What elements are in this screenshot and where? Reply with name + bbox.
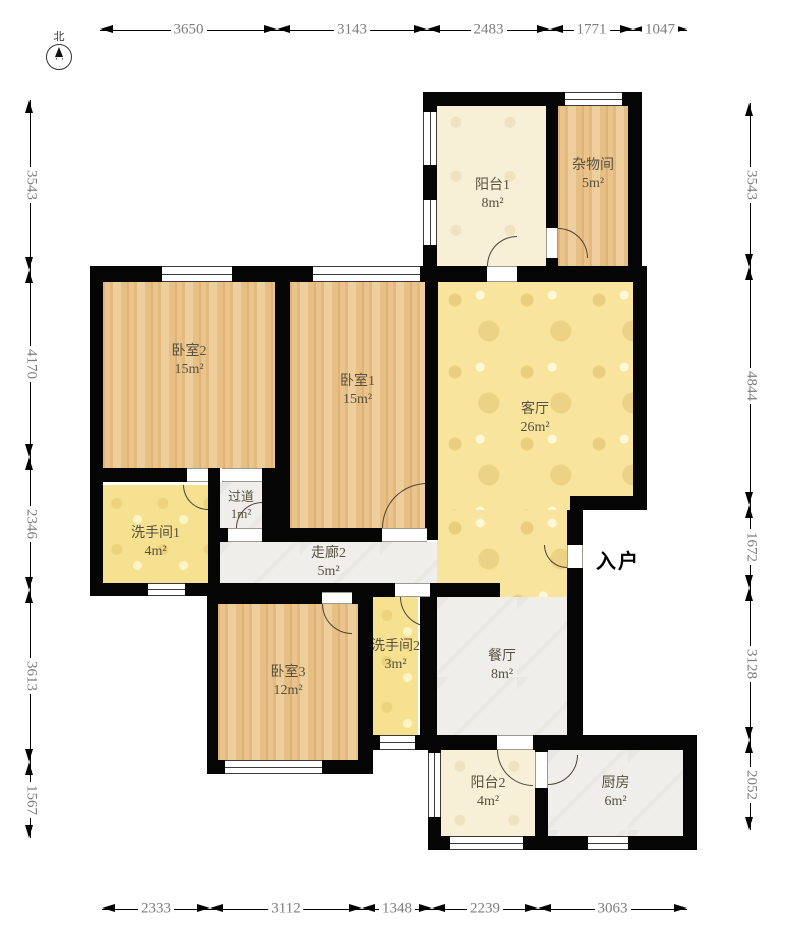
dimension-segment: 1348 [362, 909, 432, 910]
dimension-segment: 3543 [30, 100, 31, 270]
dimension-segment: 3650 [100, 30, 277, 31]
compass-needle-north [55, 47, 63, 57]
window [450, 836, 523, 850]
dimension-value: 2333 [138, 901, 174, 918]
room-balcony1: 阳台1 8m² [437, 106, 548, 266]
door-opening-aisle [228, 528, 262, 542]
dimension-value: 1567 [23, 782, 40, 818]
room-area: 5m² [317, 564, 339, 581]
dimension-value: 1047 [642, 22, 678, 39]
dimension-segment: 3613 [30, 590, 31, 762]
dimension-segment: 3543 [750, 103, 751, 267]
room-label: 洗手间2 [371, 638, 420, 657]
room-corridor2: 走廊2 5m² [220, 542, 437, 583]
window [148, 583, 185, 596]
room-area: 5m² [582, 176, 604, 193]
room-living-opening [500, 583, 570, 597]
compass: 北 [44, 32, 74, 70]
compass-icon [46, 44, 72, 70]
wall [570, 496, 647, 510]
door-opening-balcony1 [487, 266, 517, 282]
dimension-segment: 2333 [102, 909, 210, 910]
room-bedroom2: 卧室2 15m² [103, 282, 275, 468]
dimension-value: 3143 [334, 22, 370, 39]
wall [90, 266, 103, 596]
room-living: 客厅 26m² [437, 282, 633, 510]
room-label: 阳台2 [471, 775, 506, 794]
window [313, 266, 420, 282]
wall [425, 266, 438, 540]
door-opening-bedroom2 [222, 468, 262, 482]
dimension-value: 3063 [595, 901, 631, 918]
wall [628, 92, 642, 282]
dimension-value: 1771 [574, 22, 610, 39]
room-label: 卧室3 [271, 664, 306, 683]
room-label: 阳台1 [475, 177, 510, 196]
dimension-value: 2483 [471, 22, 507, 39]
room-label: 卧室2 [172, 343, 207, 362]
door-opening-bath2 [395, 583, 430, 597]
room-label: 走廊2 [311, 545, 346, 564]
wall [208, 468, 220, 596]
dimension-segment: 1672 [750, 505, 751, 588]
dimension-value: 3128 [743, 646, 760, 682]
compass-needle-south [56, 58, 63, 67]
door-opening-storage [546, 228, 558, 258]
dimension-value: 2239 [467, 901, 503, 918]
dimension-segment: 3128 [750, 588, 751, 740]
room-area: 6m² [604, 794, 626, 811]
wall [207, 592, 218, 773]
window [225, 760, 322, 774]
room-area: 12m² [273, 683, 302, 700]
wall [633, 266, 647, 510]
room-label: 厨房 [602, 775, 630, 794]
wall [546, 102, 558, 228]
window [162, 266, 232, 282]
window [423, 200, 437, 245]
door-opening-entry [567, 545, 583, 568]
room-label: 餐厅 [488, 648, 516, 667]
wall [275, 266, 290, 542]
north-label: 北 [44, 32, 74, 43]
room-area: 15m² [174, 362, 203, 379]
dimension-segment: 3063 [538, 909, 687, 910]
wall [420, 583, 437, 750]
dimension-value: 3112 [268, 901, 303, 918]
dimension-value: 2052 [743, 767, 760, 803]
room-label: 洗手间1 [131, 525, 180, 544]
window [423, 112, 437, 165]
window [380, 735, 415, 750]
dimension-segment: 1047 [633, 30, 687, 31]
room-label: 卧室1 [340, 373, 375, 392]
room-area: 15m² [343, 392, 372, 409]
room-area: 8m² [481, 196, 503, 213]
dimension-segment: 3143 [277, 30, 427, 31]
door-opening-balcony2 [497, 735, 533, 750]
room-area: 26m² [520, 420, 549, 437]
dimension-segment: 2239 [432, 909, 538, 910]
dimension-segment: 1567 [30, 762, 31, 838]
wall [683, 735, 697, 850]
window [565, 92, 622, 106]
door-opening-bedroom3 [322, 592, 352, 604]
window [428, 753, 441, 817]
dimension-value: 2346 [23, 506, 40, 542]
dimension-segment: 2483 [427, 30, 550, 31]
door-opening-bedroom1 [382, 528, 427, 542]
door-opening-bath1 [187, 468, 208, 482]
dimension-value: 3650 [171, 22, 207, 39]
dimension-segment: 4844 [750, 267, 751, 505]
room-label: 过道 [228, 488, 254, 506]
dimension-segment: 3112 [210, 909, 362, 910]
dimension-segment: 1771 [550, 30, 633, 31]
dimension-segment: 2052 [750, 740, 751, 830]
wall [548, 735, 697, 750]
dimension-segment: 4170 [30, 270, 31, 457]
dimension-value: 3543 [743, 167, 760, 203]
dimension-value: 4170 [23, 346, 40, 382]
room-area: 8m² [491, 667, 513, 684]
dimension-value: 1348 [379, 901, 415, 918]
room-label: 杂物间 [572, 157, 614, 176]
entry-label: 入户 [596, 545, 640, 574]
dimension-value: 4844 [743, 368, 760, 404]
room-area: 4m² [144, 544, 166, 561]
dimension-value: 3613 [23, 658, 40, 694]
room-area: 3m² [384, 657, 406, 674]
door-opening-kitchen [535, 752, 548, 788]
room-dining: 餐厅 8m² [437, 597, 567, 735]
floorplan-canvas: 阳台1 8m² 杂物间 5m² 卧室2 15m² 卧室1 15m² 客厅 26m… [0, 0, 789, 943]
dimension-value: 1672 [743, 529, 760, 565]
window [588, 836, 628, 850]
dimension-segment: 2346 [30, 457, 31, 590]
room-label: 客厅 [521, 401, 549, 420]
dimension-value: 3543 [23, 167, 40, 203]
room-area: 4m² [477, 794, 499, 811]
